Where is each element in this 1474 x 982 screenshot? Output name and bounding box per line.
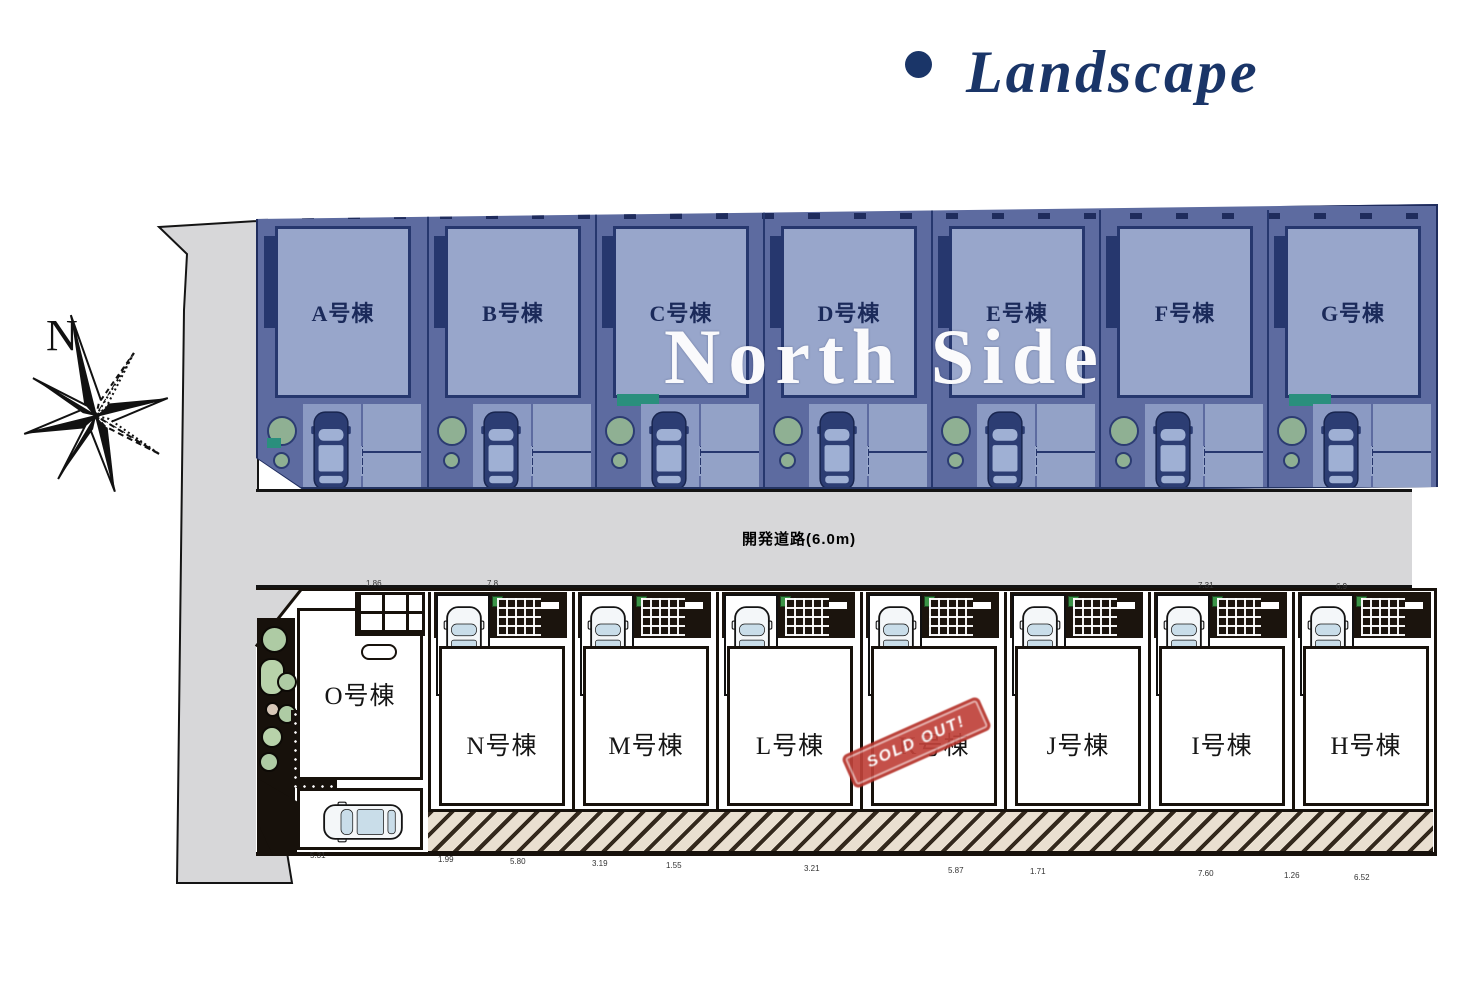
dimension-label: 1.26 <box>1284 871 1300 880</box>
compass-rose-icon: N <box>8 298 188 513</box>
planter <box>361 644 397 660</box>
tree-icon <box>437 416 467 446</box>
page-title: Landscape <box>905 38 1260 108</box>
page-title-text: Landscape <box>966 39 1260 105</box>
tree-icon <box>259 752 279 772</box>
development-road: 開発道路(6.0m) <box>256 489 1412 588</box>
building-l: L号棟 <box>727 646 853 806</box>
building-b: B号棟 <box>445 226 581 398</box>
north-section: A号棟 B号棟 C号棟 <box>256 204 1438 497</box>
north-side-overlay: North Side <box>664 312 1106 402</box>
car-icon <box>647 408 691 494</box>
tree-icon <box>261 726 283 748</box>
building-f: F号棟 <box>1117 226 1253 398</box>
tree-icon <box>779 452 796 469</box>
north-lot-a: A号棟 <box>259 210 425 490</box>
building-n: N号棟 <box>439 646 565 806</box>
tree-icon <box>277 672 297 692</box>
tree-icon <box>941 416 971 446</box>
building-g: G号棟 <box>1285 226 1421 398</box>
compass-north-label: N <box>46 311 78 360</box>
car-icon <box>311 800 415 844</box>
dimension-label: 7.60 <box>1198 869 1214 878</box>
north-lot-g: G号棟 <box>1267 210 1433 490</box>
dimension-label: 1.99 <box>438 855 454 864</box>
trellis-grid <box>497 598 541 636</box>
dimension-label: 3.19 <box>592 859 608 868</box>
south-lot-o: O号棟 <box>257 592 428 855</box>
south-section: O号棟 N号棟 M号棟 <box>256 588 1437 856</box>
tree-icon <box>611 452 628 469</box>
tree-icon <box>443 452 460 469</box>
tree-icon <box>1283 452 1300 469</box>
parking-space <box>297 788 423 850</box>
car-icon <box>1319 408 1363 494</box>
dimension-label: 5.87 <box>948 866 964 875</box>
north-lot-f: F号棟 <box>1099 210 1265 490</box>
bullet-icon <box>905 51 932 78</box>
building-j: J号棟 <box>1015 646 1141 806</box>
car-icon <box>983 408 1027 494</box>
car-icon <box>1151 408 1195 494</box>
tree-icon <box>773 416 803 446</box>
building-m: M号棟 <box>583 646 709 806</box>
tree-icon <box>273 452 290 469</box>
building-h: H号棟 <box>1303 646 1429 806</box>
dimension-label: 1.86 <box>366 579 382 588</box>
dimension-label: 5.80 <box>510 857 526 866</box>
car-icon <box>309 408 353 494</box>
tree-icon <box>1115 452 1132 469</box>
car-icon <box>479 408 523 494</box>
dimension-label: 3.21 <box>804 864 820 873</box>
dimension-label: 7.8 <box>487 579 498 588</box>
tree-icon <box>1277 416 1307 446</box>
tree-icon <box>605 416 635 446</box>
road-label: 開発道路(6.0m) <box>742 528 856 549</box>
tree-icon <box>1109 416 1139 446</box>
north-lot-b: B号棟 <box>427 210 593 490</box>
car-icon <box>815 408 859 494</box>
approach-steps <box>355 592 425 636</box>
hatched-setback-area <box>428 809 1433 855</box>
site-plan: Landscape N <box>0 0 1474 982</box>
dimension-label: 1.71 <box>1030 867 1046 876</box>
building-i: I号棟 <box>1159 646 1285 806</box>
dimension-label: 6.52 <box>1354 873 1370 882</box>
tree-icon <box>947 452 964 469</box>
dimension-label: 5.31 <box>310 851 326 860</box>
tree-icon <box>261 626 288 653</box>
dimension-label: 7.31 <box>1198 581 1214 590</box>
dimension-label: 6.9 <box>1336 582 1347 591</box>
dimension-label: 1.55 <box>666 861 682 870</box>
building-a: A号棟 <box>275 226 411 398</box>
garden-bed <box>267 438 281 448</box>
